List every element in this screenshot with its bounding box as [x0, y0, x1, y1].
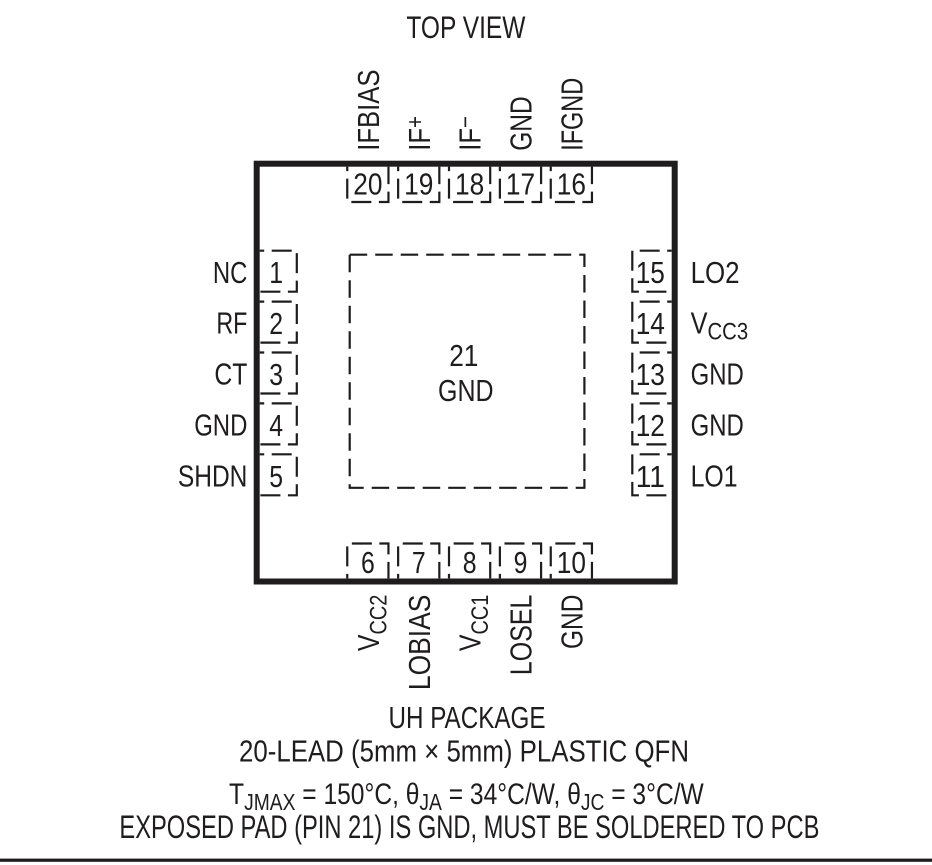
- svg-text:7: 7: [412, 546, 426, 580]
- svg-text:IFGND: IFGND: [555, 78, 589, 151]
- svg-text:8: 8: [463, 546, 477, 580]
- svg-text:GND: GND: [555, 595, 589, 649]
- svg-text:10: 10: [557, 546, 586, 580]
- svg-text:6: 6: [361, 546, 375, 580]
- svg-text:19: 19: [404, 168, 433, 202]
- svg-text:GND: GND: [691, 409, 744, 443]
- svg-text:20: 20: [353, 168, 382, 202]
- svg-text:GND: GND: [194, 409, 247, 443]
- svg-text:LO2: LO2: [691, 256, 740, 290]
- svg-text:LOBIAS: LOBIAS: [403, 595, 437, 691]
- svg-text:SHDN: SHDN: [178, 459, 248, 493]
- svg-text:GND: GND: [691, 358, 744, 392]
- svg-text:VCC1: VCC1: [453, 595, 493, 651]
- svg-text:12: 12: [636, 409, 665, 443]
- svg-text:CT: CT: [214, 358, 247, 392]
- svg-text:RF: RF: [216, 307, 247, 341]
- svg-text:4: 4: [269, 409, 283, 443]
- svg-text:1: 1: [269, 256, 283, 290]
- svg-text:GND: GND: [505, 96, 539, 151]
- svg-text:20-LEAD (5mm × 5mm) PLASTIC QF: 20-LEAD (5mm × 5mm) PLASTIC QFN: [239, 735, 689, 769]
- svg-text:9: 9: [514, 546, 528, 580]
- svg-text:18: 18: [455, 168, 484, 202]
- svg-text:LO1: LO1: [691, 459, 738, 493]
- svg-text:14: 14: [636, 307, 665, 341]
- svg-text:EXPOSED PAD (PIN 21) IS GND, M: EXPOSED PAD (PIN 21) IS GND, MUST BE SOL…: [119, 808, 819, 845]
- svg-text:TOP VIEW: TOP VIEW: [406, 9, 525, 45]
- svg-text:NC: NC: [213, 256, 248, 290]
- svg-text:IF−: IF−: [452, 116, 487, 151]
- svg-text:11: 11: [636, 460, 665, 494]
- svg-text:15: 15: [636, 256, 665, 290]
- svg-text:13: 13: [636, 358, 665, 392]
- svg-text:VCC2: VCC2: [352, 595, 392, 651]
- svg-text:IF+: IF+: [401, 116, 436, 151]
- svg-text:17: 17: [506, 168, 535, 202]
- svg-text:21: 21: [449, 339, 478, 373]
- svg-text:3: 3: [269, 358, 283, 392]
- svg-text:VCC3: VCC3: [691, 306, 749, 345]
- svg-text:2: 2: [269, 307, 283, 341]
- svg-text:UH PACKAGE: UH PACKAGE: [389, 701, 546, 735]
- svg-text:5: 5: [269, 460, 283, 494]
- svg-text:16: 16: [557, 168, 586, 202]
- svg-text:GND: GND: [438, 374, 494, 408]
- svg-text:LOSEL: LOSEL: [505, 595, 539, 676]
- svg-text:IFBIAS: IFBIAS: [352, 70, 386, 151]
